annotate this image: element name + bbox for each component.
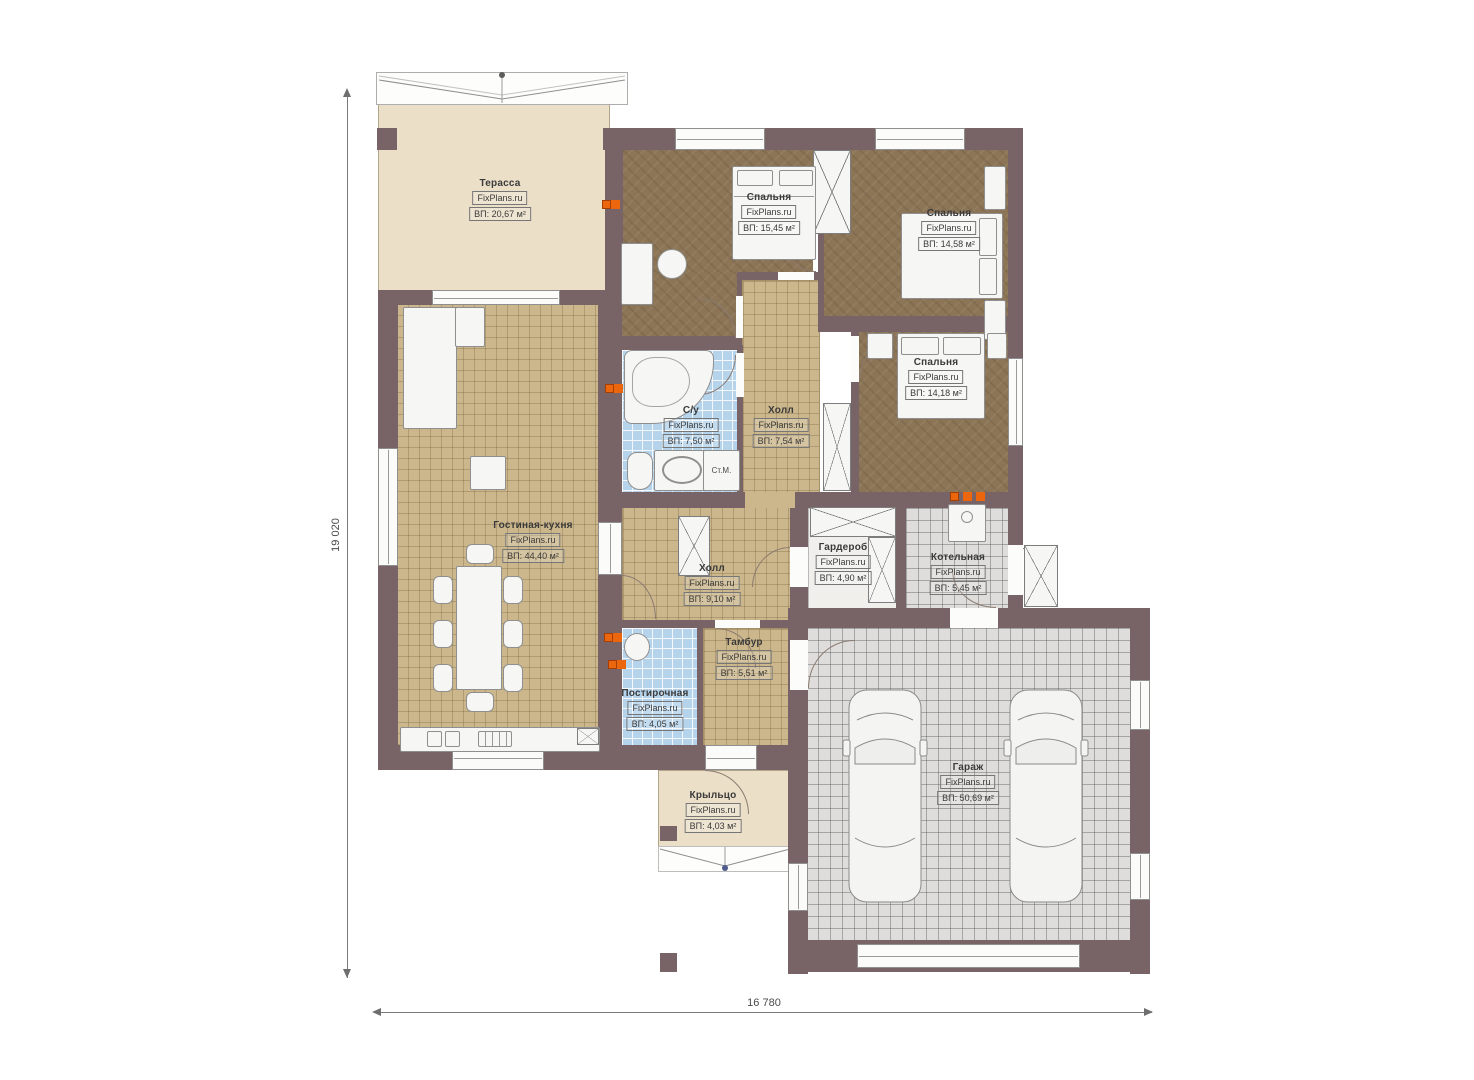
desk-chair	[657, 249, 687, 279]
dining-table	[456, 566, 502, 690]
door-opening	[736, 353, 744, 397]
room-name: Постирочная	[621, 688, 688, 699]
coffee-table	[470, 456, 506, 490]
stove	[478, 731, 512, 747]
pillow	[779, 170, 813, 186]
room-area: ВП: 5,51 м²	[716, 666, 773, 680]
room-label-boiler-room: Котельная FixPlans.ru ВП: 5,45 м²	[930, 552, 987, 595]
pillow	[979, 258, 997, 295]
dimension-arrow-down	[343, 969, 351, 978]
kitchen-appliance	[577, 728, 599, 745]
room-label-vestibule: Тамбур FixPlans.ru ВП: 5,51 м²	[716, 637, 773, 680]
porch-canopy-outline	[658, 846, 792, 872]
room-label-porch: Крыльцо FixPlans.ru ВП: 4,03 м²	[685, 790, 742, 833]
brand-watermark: FixPlans.ru	[930, 565, 985, 579]
wardrobe-cabinet	[810, 507, 896, 537]
sofa	[455, 307, 485, 347]
dimension-line-vertical	[347, 94, 348, 978]
window	[378, 448, 398, 566]
brand-watermark: FixPlans.ru	[908, 370, 963, 384]
brand-watermark: FixPlans.ru	[940, 775, 995, 789]
desk	[621, 243, 653, 305]
room-name: Спальня	[918, 208, 980, 219]
brand-watermark: FixPlans.ru	[472, 191, 527, 205]
room-area: ВП: 14,58 м²	[918, 237, 980, 251]
brand-watermark: FixPlans.ru	[921, 221, 976, 235]
chair	[433, 576, 453, 604]
room-label-terrace: Терасса FixPlans.ru ВП: 20,67 м²	[469, 178, 531, 221]
room-name: Холл	[684, 563, 741, 574]
chair	[503, 664, 523, 692]
car	[1004, 686, 1088, 906]
room-name: Котельная	[930, 552, 987, 563]
kitchen-sink	[427, 731, 442, 747]
chair	[503, 620, 523, 648]
room-name: Спальня	[905, 357, 967, 368]
dimension-arrow-up	[343, 88, 351, 97]
door-opening	[778, 272, 814, 280]
door-opening	[790, 547, 808, 587]
wall-segment	[620, 336, 742, 350]
room-label-wardrobe: Гардероб FixPlans.ru ВП: 4,90 м²	[815, 542, 872, 585]
car	[843, 686, 927, 906]
washbasin	[662, 456, 702, 484]
utility-marker	[950, 492, 959, 501]
utility-marker	[604, 633, 613, 642]
room-label-bedroom-1: Спальня FixPlans.ru ВП: 15,45 м²	[738, 192, 800, 235]
utility-marker	[608, 660, 617, 669]
room-name: Терасса	[469, 178, 531, 189]
room-area: ВП: 5,45 м²	[930, 581, 987, 595]
wall-segment	[697, 624, 703, 747]
pillow	[979, 218, 997, 256]
chair	[466, 692, 494, 712]
room-label-bedroom-2: Спальня FixPlans.ru ВП: 14,58 м²	[918, 208, 980, 251]
door-opening	[598, 522, 622, 575]
room-label-bedroom-3: Спальня FixPlans.ru ВП: 14,18 м²	[905, 357, 967, 400]
brand-watermark: FixPlans.ru	[627, 701, 682, 715]
room-name: Холл	[753, 405, 810, 416]
room-area: ВП: 4,03 м²	[685, 819, 742, 833]
room-area: ВП: 15,45 м²	[738, 221, 800, 235]
entrance-door-opening	[705, 745, 757, 770]
brand-watermark: FixPlans.ru	[505, 533, 560, 547]
chair	[433, 664, 453, 692]
floor-plan: 19 020 16 780	[0, 0, 1474, 1080]
window	[1130, 853, 1150, 900]
wall-segment	[377, 128, 397, 150]
dimension-arrow-right	[1144, 1008, 1153, 1016]
chair	[433, 620, 453, 648]
terrace-door-opening	[432, 290, 560, 305]
dimension-arrow-left	[372, 1008, 381, 1016]
washing-machine-label: Ст.М.	[712, 466, 732, 475]
room-area: ВП: 9,10 м²	[684, 592, 741, 606]
wall-segment	[1130, 608, 1150, 974]
hall-upper-floor	[742, 280, 820, 502]
window	[875, 128, 965, 150]
closet	[813, 150, 851, 234]
room-name: С/у	[663, 405, 720, 416]
room-area: ВП: 7,54 м²	[753, 434, 810, 448]
room-name: Спальня	[738, 192, 800, 203]
dimension-value-horizontal: 16 780	[747, 997, 781, 1009]
sofa	[403, 307, 457, 429]
room-area: ВП: 44,40 м²	[502, 549, 564, 563]
washing-machine: Ст.М.	[703, 450, 740, 491]
wardrobe-cabinet	[868, 537, 896, 603]
room-label-laundry: Постирочная FixPlans.ru ВП: 4,05 м²	[621, 688, 688, 731]
chair	[503, 576, 523, 604]
wall-segment	[823, 316, 1008, 332]
porch-column	[660, 826, 677, 841]
room-area: ВП: 50,69 м²	[937, 791, 999, 805]
boiler-unit	[948, 504, 986, 542]
kitchen-sink	[445, 731, 460, 747]
brand-watermark: FixPlans.ru	[753, 418, 808, 432]
nightstand	[984, 166, 1006, 210]
washer	[624, 633, 650, 661]
room-area: ВП: 14,18 м²	[905, 386, 967, 400]
room-label-bathroom: С/у FixPlans.ru ВП: 7,50 м²	[663, 405, 720, 448]
room-area: ВП: 20,67 м²	[469, 207, 531, 221]
room-label-hall-upper: Холл FixPlans.ru ВП: 7,54 м²	[753, 405, 810, 448]
room-name: Крыльцо	[685, 790, 742, 801]
room-label-living-kitchen: Гостиная-кухня FixPlans.ru ВП: 44,40 м²	[493, 520, 572, 563]
porch-column	[660, 953, 677, 972]
entrance-steps	[1024, 545, 1058, 607]
pillow	[737, 170, 773, 186]
wall-segment	[620, 620, 792, 628]
brand-watermark: FixPlans.ru	[685, 803, 740, 817]
brand-watermark: FixPlans.ru	[716, 650, 771, 664]
door-opening	[715, 620, 760, 628]
utility-marker	[605, 384, 614, 393]
toilet	[627, 452, 653, 490]
closet	[823, 403, 851, 491]
window	[675, 128, 765, 150]
utility-marker	[602, 200, 611, 209]
boiler-dial	[961, 511, 973, 523]
garage-door	[857, 944, 1080, 968]
wall-segment	[896, 508, 906, 611]
brand-watermark: FixPlans.ru	[663, 418, 718, 432]
room-name: Гараж	[937, 762, 999, 773]
pillow	[901, 337, 939, 355]
pillow	[943, 337, 981, 355]
terrace-roof-outline	[376, 72, 628, 105]
room-name: Гардероб	[815, 542, 872, 553]
door-opening	[790, 640, 808, 690]
door-opening	[950, 608, 998, 628]
nightstand	[867, 333, 893, 359]
window	[1130, 680, 1150, 730]
wall-segment	[1008, 128, 1023, 508]
room-name: Гостиная-кухня	[493, 520, 572, 531]
wall-segment	[598, 745, 798, 770]
room-area: ВП: 7,50 м²	[663, 434, 720, 448]
brand-watermark: FixPlans.ru	[684, 576, 739, 590]
window	[1008, 358, 1023, 446]
nightstand	[987, 333, 1007, 359]
dimension-value-vertical: 19 020	[330, 518, 342, 552]
brand-watermark: FixPlans.ru	[815, 555, 870, 569]
dimension-line-horizontal	[375, 1012, 1152, 1013]
window	[788, 863, 808, 911]
brand-watermark: FixPlans.ru	[741, 205, 796, 219]
hall-passage	[745, 492, 795, 508]
room-area: ВП: 4,90 м²	[815, 571, 872, 585]
wall-segment	[818, 492, 1023, 508]
door-opening	[736, 296, 743, 338]
room-name: Тамбур	[716, 637, 773, 648]
room-label-hall-lower: Холл FixPlans.ru ВП: 9,10 м²	[684, 563, 741, 606]
room-area: ВП: 4,05 м²	[627, 717, 684, 731]
door-opening	[851, 336, 859, 382]
exit-door-opening	[1008, 545, 1023, 595]
chair	[466, 544, 494, 564]
room-label-garage: Гараж FixPlans.ru ВП: 50,69 м²	[937, 762, 999, 805]
